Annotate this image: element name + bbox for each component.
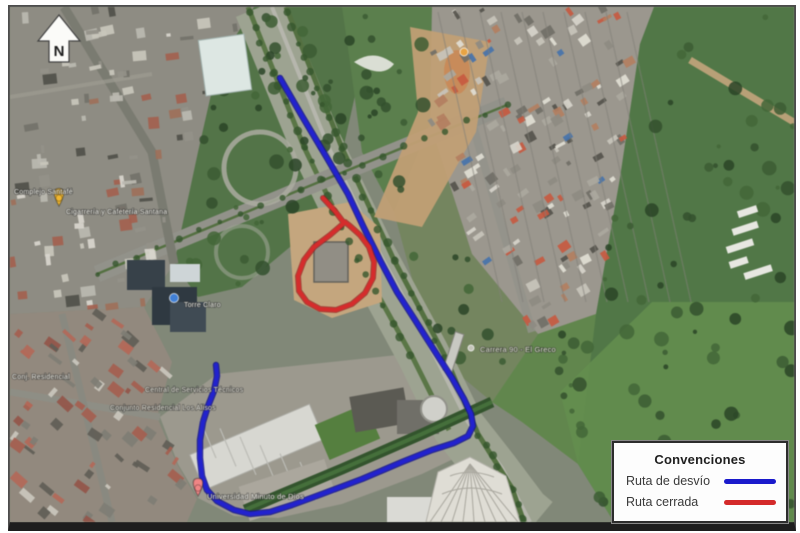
detour-route-swatch [724,479,776,484]
legend-label-closed: Ruta cerrada [626,495,698,509]
legend-title: Convenciones [614,452,786,467]
legend-label-detour: Ruta de desvío [626,474,710,488]
closed-route-swatch [724,500,776,505]
screenshot-stage: Complejo SantaféCigarrería y Cafetería S… [0,0,800,533]
legend: Convenciones Ruta de desvío Ruta cerrada [612,441,788,523]
legend-row-closed: Ruta cerrada [626,495,776,509]
legend-row-detour: Ruta de desvío [626,474,776,488]
